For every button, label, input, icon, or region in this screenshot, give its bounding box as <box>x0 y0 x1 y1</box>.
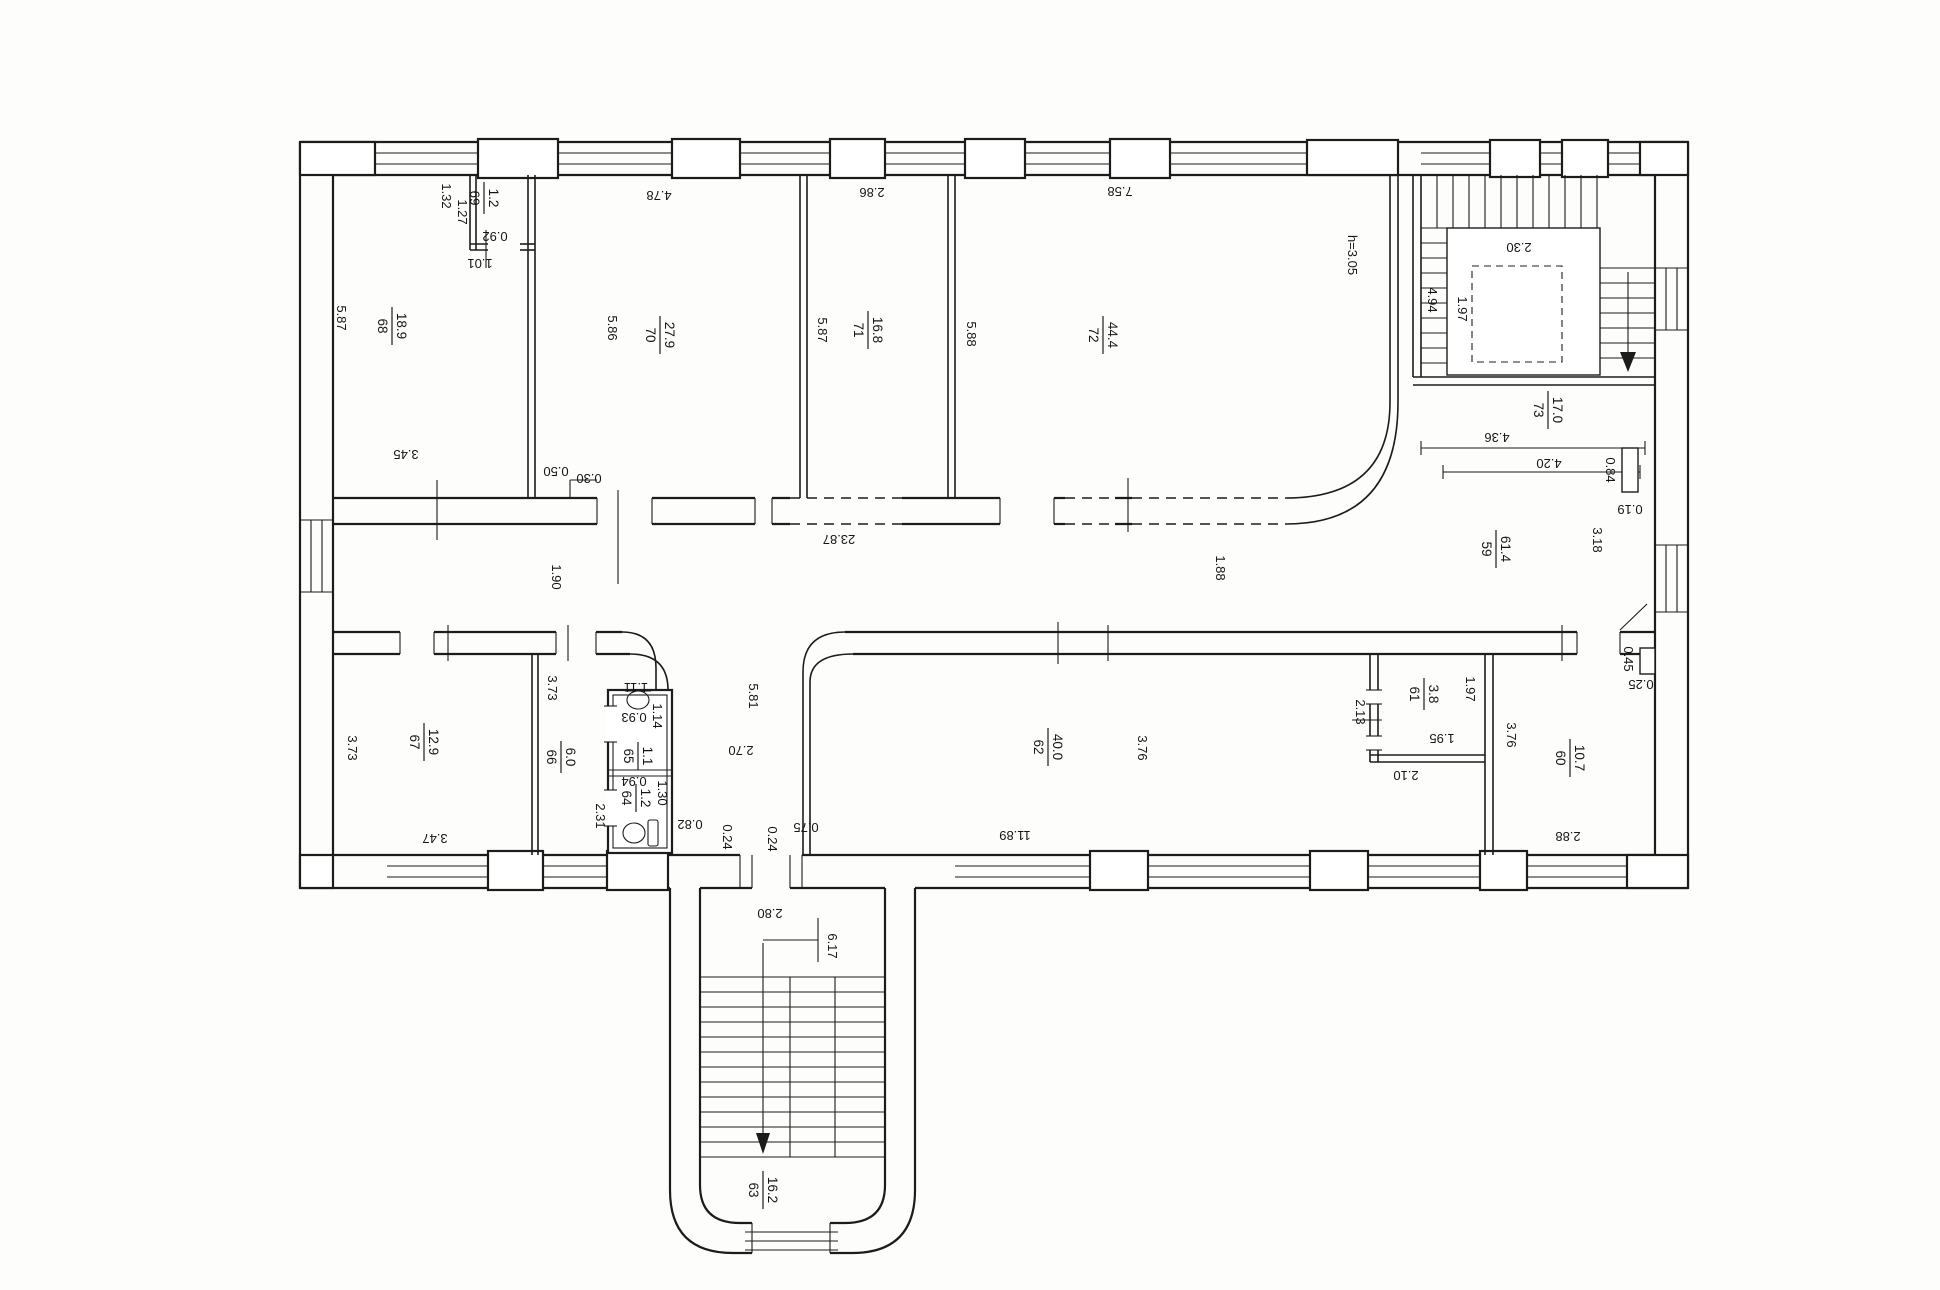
room-label-68: 18.9 68 <box>375 307 409 345</box>
svg-text:61: 61 <box>1407 686 1422 701</box>
svg-text:67: 67 <box>407 734 422 749</box>
dim-r70-depth: 5.86 <box>605 315 620 340</box>
room-label-71: 16.8 71 <box>851 311 885 349</box>
dim-r71-depth: 5.87 <box>815 317 830 342</box>
svg-text:65: 65 <box>621 748 636 763</box>
room-label-60: 10.7 60 <box>1553 739 1587 777</box>
dim-r68-depth: 5.87 <box>334 305 349 330</box>
room-label-59: 61.4 59 <box>1479 530 1513 568</box>
svg-text:1.2: 1.2 <box>638 789 653 808</box>
dim-r71-width: 2.86 <box>859 185 884 200</box>
svg-text:60: 60 <box>1553 750 1568 765</box>
room-area: 68 <box>375 318 390 333</box>
hall73-wall-stub <box>1622 448 1638 492</box>
svg-text:72: 72 <box>1086 327 1101 342</box>
svg-text:71: 71 <box>851 322 866 337</box>
room-label-72: 44.4 72 <box>1086 316 1120 354</box>
dim-h73-w1: 4.36 <box>1484 430 1509 445</box>
stair-down-arrow <box>1620 272 1636 372</box>
floor-plan-page: 18.9 68 1.2 69 27.9 70 16.8 71 44.4 72 1… <box>0 0 1940 1290</box>
dim-r66-width: 2.31 <box>593 803 608 828</box>
dim-h73-stub: 0.84 <box>1603 457 1618 482</box>
svg-text:3.8: 3.8 <box>1426 685 1441 704</box>
svg-text:1.1: 1.1 <box>640 747 655 766</box>
room60-wall-stub <box>1640 648 1655 674</box>
dim-jamb-b: 0.30 <box>576 471 601 486</box>
dim-wc65-w: 1.14 <box>650 703 665 728</box>
stair-treads-top <box>1421 175 1597 228</box>
svg-text:66: 66 <box>544 749 559 764</box>
svg-text:27.9: 27.9 <box>662 322 677 348</box>
dim-wc64-len: 1.30 <box>655 780 670 805</box>
dim-r70-width: 4.78 <box>646 188 671 203</box>
dim-r62-depth: 3.76 <box>1135 735 1150 760</box>
svg-text:63: 63 <box>746 1182 761 1197</box>
svg-text:16.8: 16.8 <box>870 317 885 343</box>
dim-stair-flight: 2.30 <box>1506 240 1531 255</box>
room-label-73: 17.0 73 <box>1531 391 1565 429</box>
entrance-stairwell <box>670 855 915 1253</box>
dim-stair-depth: 4.94 <box>1425 287 1440 312</box>
dim-lob-w: 2.70 <box>728 743 753 758</box>
dim-wc65-door: 1.11 <box>624 680 648 695</box>
svg-text:16.2: 16.2 <box>765 1177 780 1203</box>
svg-text:40.0: 40.0 <box>1050 734 1065 760</box>
dim-r67-width: 3.47 <box>422 831 447 846</box>
room-label-70: 27.9 70 <box>643 316 677 354</box>
dim-r61-id: 2.10 <box>1393 768 1418 783</box>
svg-text:64: 64 <box>619 790 634 806</box>
dim-c69-door: 0.92 <box>482 229 507 244</box>
svg-text:1.2: 1.2 <box>486 189 501 208</box>
svg-text:73: 73 <box>1531 402 1546 417</box>
dim-cor-left: 1.90 <box>549 564 564 589</box>
dim-cor-right: 3.18 <box>1590 527 1605 552</box>
svg-text:12.9: 12.9 <box>426 729 441 755</box>
stair-treads-entrance <box>700 977 885 1157</box>
dim-r60-thk: 0.25 <box>1628 677 1653 692</box>
dim-r60-width: 2.88 <box>1555 829 1580 844</box>
svg-text:61.4: 61.4 <box>1498 536 1513 563</box>
dim-r61-d: 1.97 <box>1463 676 1478 701</box>
dim-h73-thk: 0.19 <box>1617 502 1642 517</box>
dim-r61-w: 2.13 <box>1353 699 1368 724</box>
dim-op-jamb2: 0.24 <box>765 826 780 851</box>
room-label-63: 16.2 63 <box>746 1171 780 1209</box>
room-number: 18.9 <box>394 313 409 339</box>
dim-jamb-a: 0.50 <box>543 464 568 479</box>
floor-plan-drawing: 18.9 68 1.2 69 27.9 70 16.8 71 44.4 72 1… <box>0 0 1940 1290</box>
dim-lob-len: 5.81 <box>746 683 761 708</box>
dim-stair-half: 1.97 <box>1455 296 1470 321</box>
dim-c69-open: 1.01 <box>467 256 492 271</box>
room-label-61: 3.8 61 <box>1407 678 1441 710</box>
dim-r67-depth: 3.73 <box>345 735 360 760</box>
dim-h73-w2: 4.20 <box>1536 456 1561 471</box>
svg-text:6.0: 6.0 <box>563 748 578 767</box>
dim-wc64-w: 0.94 <box>621 774 646 789</box>
main-stairwell <box>1413 175 1655 492</box>
dim-c69-w: 1.32 <box>439 183 454 208</box>
dim-r66-depth: 3.73 <box>545 675 560 700</box>
dim-r72-width: 7.58 <box>1107 184 1132 199</box>
dim-op-w: 0.75 <box>793 820 818 835</box>
dim-r62-len: 11.89 <box>999 828 1031 843</box>
room-label-62: 40.0 62 <box>1031 728 1065 766</box>
dim-cor-len: 23.87 <box>823 532 856 547</box>
svg-text:17.0: 17.0 <box>1550 397 1565 423</box>
dim-cor-mid: 1.88 <box>1213 555 1228 580</box>
door-leaf <box>1620 604 1647 630</box>
dim-lob-gap: 0.82 <box>677 817 702 832</box>
room-label-69: 1.2 69 <box>467 182 501 214</box>
dim-ceiling-height: h=3.05 <box>1345 235 1360 275</box>
dim-r60-depth: 3.76 <box>1504 722 1519 747</box>
corridor-north-wall <box>333 402 1398 584</box>
dim-r61-iw: 1.95 <box>1429 731 1454 746</box>
svg-text:70: 70 <box>643 327 658 342</box>
dim-c69-d: 1.27 <box>455 199 470 224</box>
dim-op-jamb1: 0.24 <box>720 824 735 849</box>
room-label-67: 12.9 67 <box>407 723 441 761</box>
dim-wc65-d: 0.93 <box>621 710 646 725</box>
dim-r60-stub: 0.45 <box>1621 646 1636 671</box>
room-label-66: 6.0 66 <box>544 741 578 773</box>
svg-text:10.7: 10.7 <box>1572 745 1587 771</box>
svg-text:59: 59 <box>1479 541 1494 556</box>
stair-down-arrow-entrance <box>756 943 770 1154</box>
dim-r68-width: 3.45 <box>393 447 418 462</box>
dim-st63-len: 6.17 <box>825 933 840 958</box>
dim-st63-w: 2.80 <box>757 906 782 921</box>
svg-text:44.4: 44.4 <box>1105 322 1120 349</box>
svg-text:62: 62 <box>1031 739 1046 754</box>
room-61-cabin <box>1352 654 1485 762</box>
dim-r72-depth: 5.88 <box>964 321 979 346</box>
